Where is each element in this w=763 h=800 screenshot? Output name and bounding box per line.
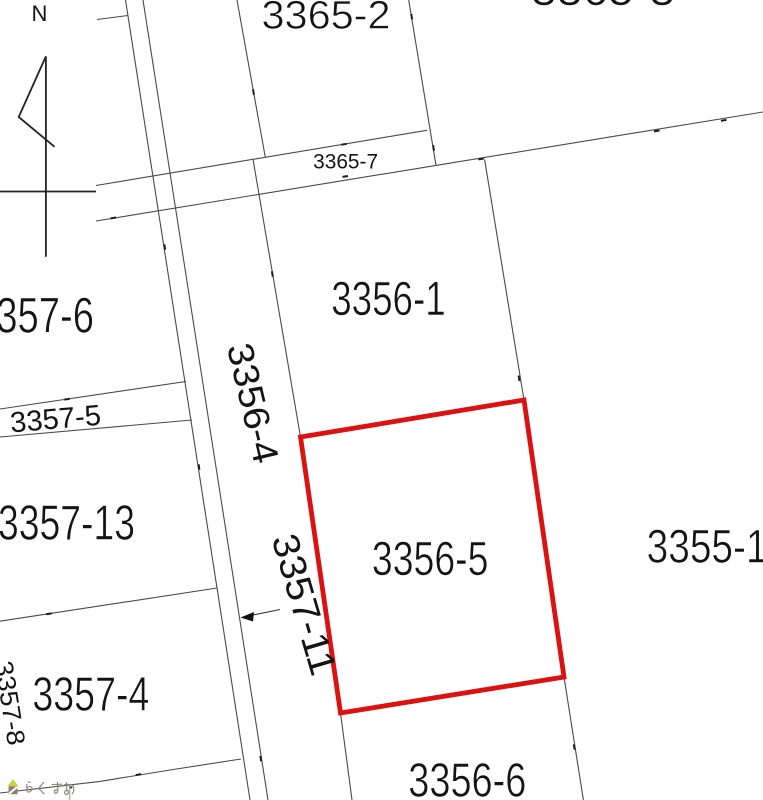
svg-text:3356-1: 3356-1 bbox=[331, 273, 446, 326]
svg-text:3356-6: 3356-6 bbox=[408, 754, 526, 800]
svg-text:3365-3: 3365-3 bbox=[531, 0, 675, 15]
svg-text:3365-2: 3365-2 bbox=[262, 0, 391, 38]
svg-text:3365-7: 3365-7 bbox=[313, 150, 378, 173]
svg-text:3357-4: 3357-4 bbox=[32, 669, 149, 722]
svg-text:3355-1: 3355-1 bbox=[647, 519, 763, 572]
svg-text:3357-6: 3357-6 bbox=[0, 288, 94, 344]
svg-text:3356-5: 3356-5 bbox=[372, 533, 489, 586]
svg-text:3357-13: 3357-13 bbox=[0, 497, 135, 551]
svg-text:N: N bbox=[32, 1, 48, 26]
